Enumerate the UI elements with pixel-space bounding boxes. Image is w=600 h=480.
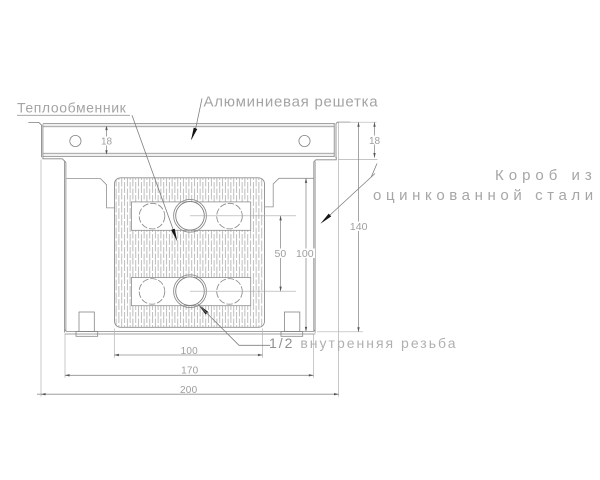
svg-text:50: 50 xyxy=(275,248,287,260)
svg-text:140: 140 xyxy=(350,221,368,233)
svg-text:18: 18 xyxy=(101,136,113,147)
svg-text:1/2 внутренняя резьба: 1/2 внутренняя резьба xyxy=(269,335,458,351)
svg-text:Алюминиевая решетка: Алюминиевая решетка xyxy=(204,93,379,110)
svg-text:18: 18 xyxy=(369,136,381,147)
svg-text:оцинкованной стали: оцинкованной стали xyxy=(373,187,598,204)
svg-text:Теплообменник: Теплообменник xyxy=(17,100,127,116)
svg-text:100: 100 xyxy=(296,248,314,260)
svg-text:200: 200 xyxy=(180,385,198,396)
svg-text:Короб из: Короб из xyxy=(495,167,597,184)
svg-text:170: 170 xyxy=(181,365,199,376)
svg-text:100: 100 xyxy=(181,346,199,357)
